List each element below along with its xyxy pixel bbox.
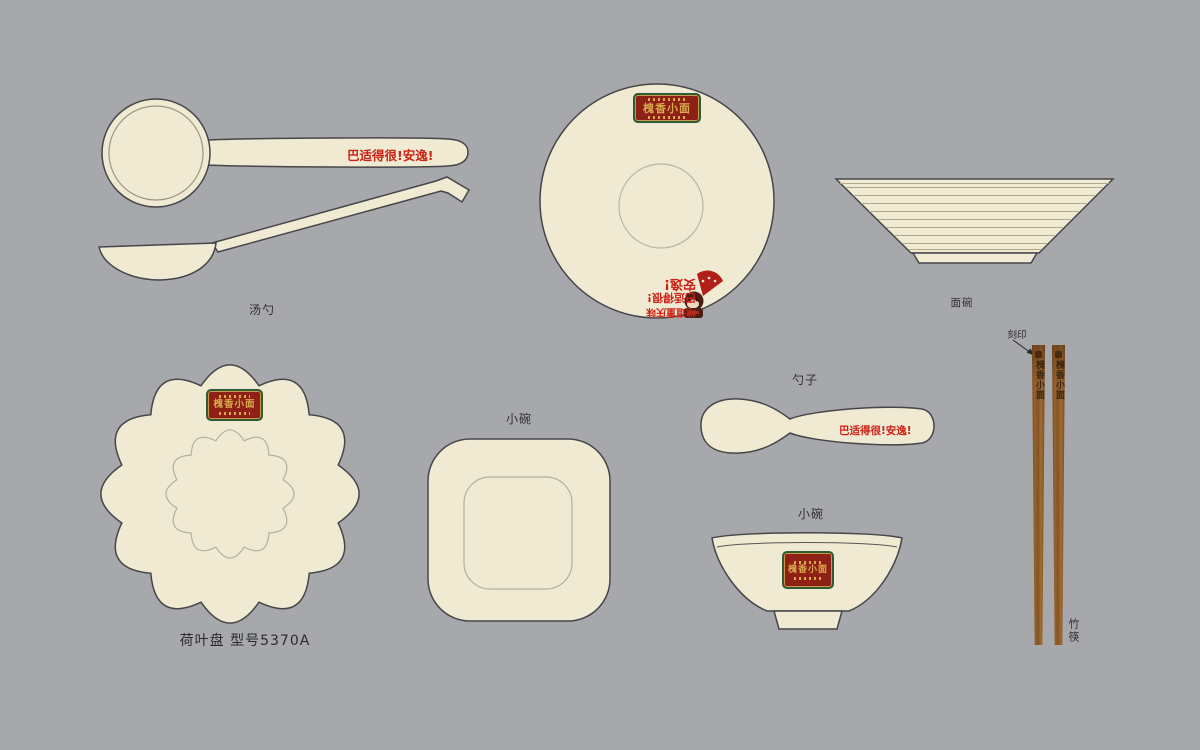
chopstick-seal-icon — [1035, 351, 1042, 358]
label-engrave: 刻印 — [1000, 327, 1034, 341]
ladle-side-bowl — [99, 243, 216, 280]
small-bowl-brand-badge: 槐香小面 — [782, 551, 834, 589]
chopstick-engraving: 槐香小面 — [1034, 360, 1043, 400]
label-small-bowl: 小碗 — [789, 505, 833, 522]
square-bowl-outer — [428, 439, 610, 621]
label-lotus-plate: 荷叶盘 型号5370A — [150, 630, 340, 650]
ladle-bowl — [102, 99, 210, 207]
badge-brand-text: 槐香小面 — [213, 400, 255, 410]
chopstick-engraving: 槐香小面 — [1054, 360, 1063, 400]
badge-ornament — [648, 116, 686, 119]
design-sheet: 巴适得很!安逸! 巴适得很!安逸! 地道重庆味 巴适得很! 安逸! 槐香小面 槐… — [0, 0, 1200, 750]
bowl-interior-line-1: 地道重庆味 — [646, 305, 696, 318]
chopstick-seal-icon — [1055, 351, 1062, 358]
label-spoon: 勺子 — [783, 371, 827, 388]
badge-ornament — [648, 98, 686, 101]
bowl-interior-line-3: 安逸! — [664, 275, 696, 291]
engrave-arrow — [1013, 340, 1035, 356]
label-soup-ladle: 汤勺 — [237, 301, 287, 318]
bowl-interior-line-2: 巴适得很! — [647, 291, 696, 305]
label-square-bowl: 小碗 — [497, 410, 541, 427]
noodle-bowl-body — [836, 179, 1113, 253]
badge-brand-text: 槐香小面 — [643, 103, 691, 114]
badge-brand-text: 槐香小面 — [788, 566, 828, 575]
small-bowl-foot — [774, 611, 842, 629]
badge-ornament — [219, 395, 251, 398]
spoon-handle-slogan: 巴适得很!安逸! — [839, 423, 919, 438]
bowl-interior-slogan: 地道重庆味 巴适得很! 安逸! — [624, 269, 696, 317]
noodle-bowl-foot — [913, 253, 1037, 263]
label-chopsticks: 竹筷 — [1068, 618, 1079, 644]
ladle-handle-slogan: 巴适得很!安逸! — [347, 145, 453, 164]
label-noodle-bowl: 面碗 — [942, 295, 982, 310]
badge-ornament — [219, 412, 251, 415]
plate-brand-badge: 槐香小面 — [206, 389, 263, 421]
badge-ornament — [794, 561, 823, 564]
badge-ornament — [794, 577, 823, 580]
noodle-bowl-side-view — [836, 179, 1113, 263]
bowl-brand-badge: 槐香小面 — [633, 93, 701, 123]
square-bowl-top-view — [428, 439, 610, 621]
ladle-side-handle — [212, 177, 469, 252]
